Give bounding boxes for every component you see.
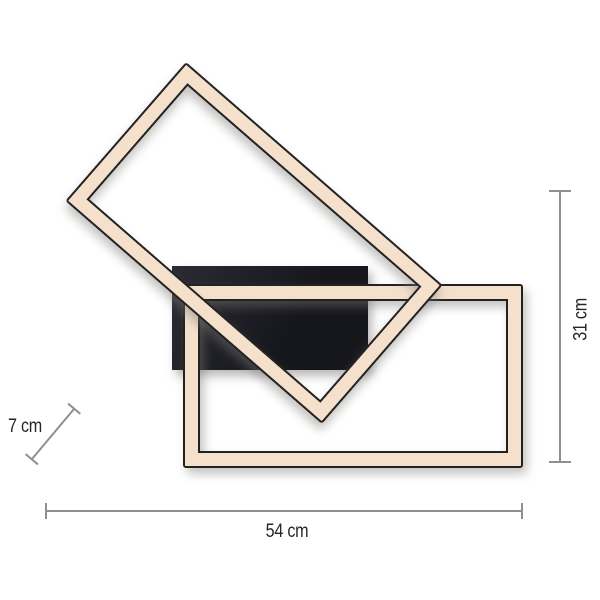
height-dimension-line (559, 190, 561, 463)
depth-dimension-label: 7 cm (0, 417, 68, 438)
width-dimension-line (45, 510, 523, 512)
height-dimension-label: 31 cm (572, 277, 593, 362)
width-dimension-label: 54 cm (245, 522, 330, 543)
product-dimension-diagram: 54 cm 31 cm 7 cm (0, 0, 600, 600)
